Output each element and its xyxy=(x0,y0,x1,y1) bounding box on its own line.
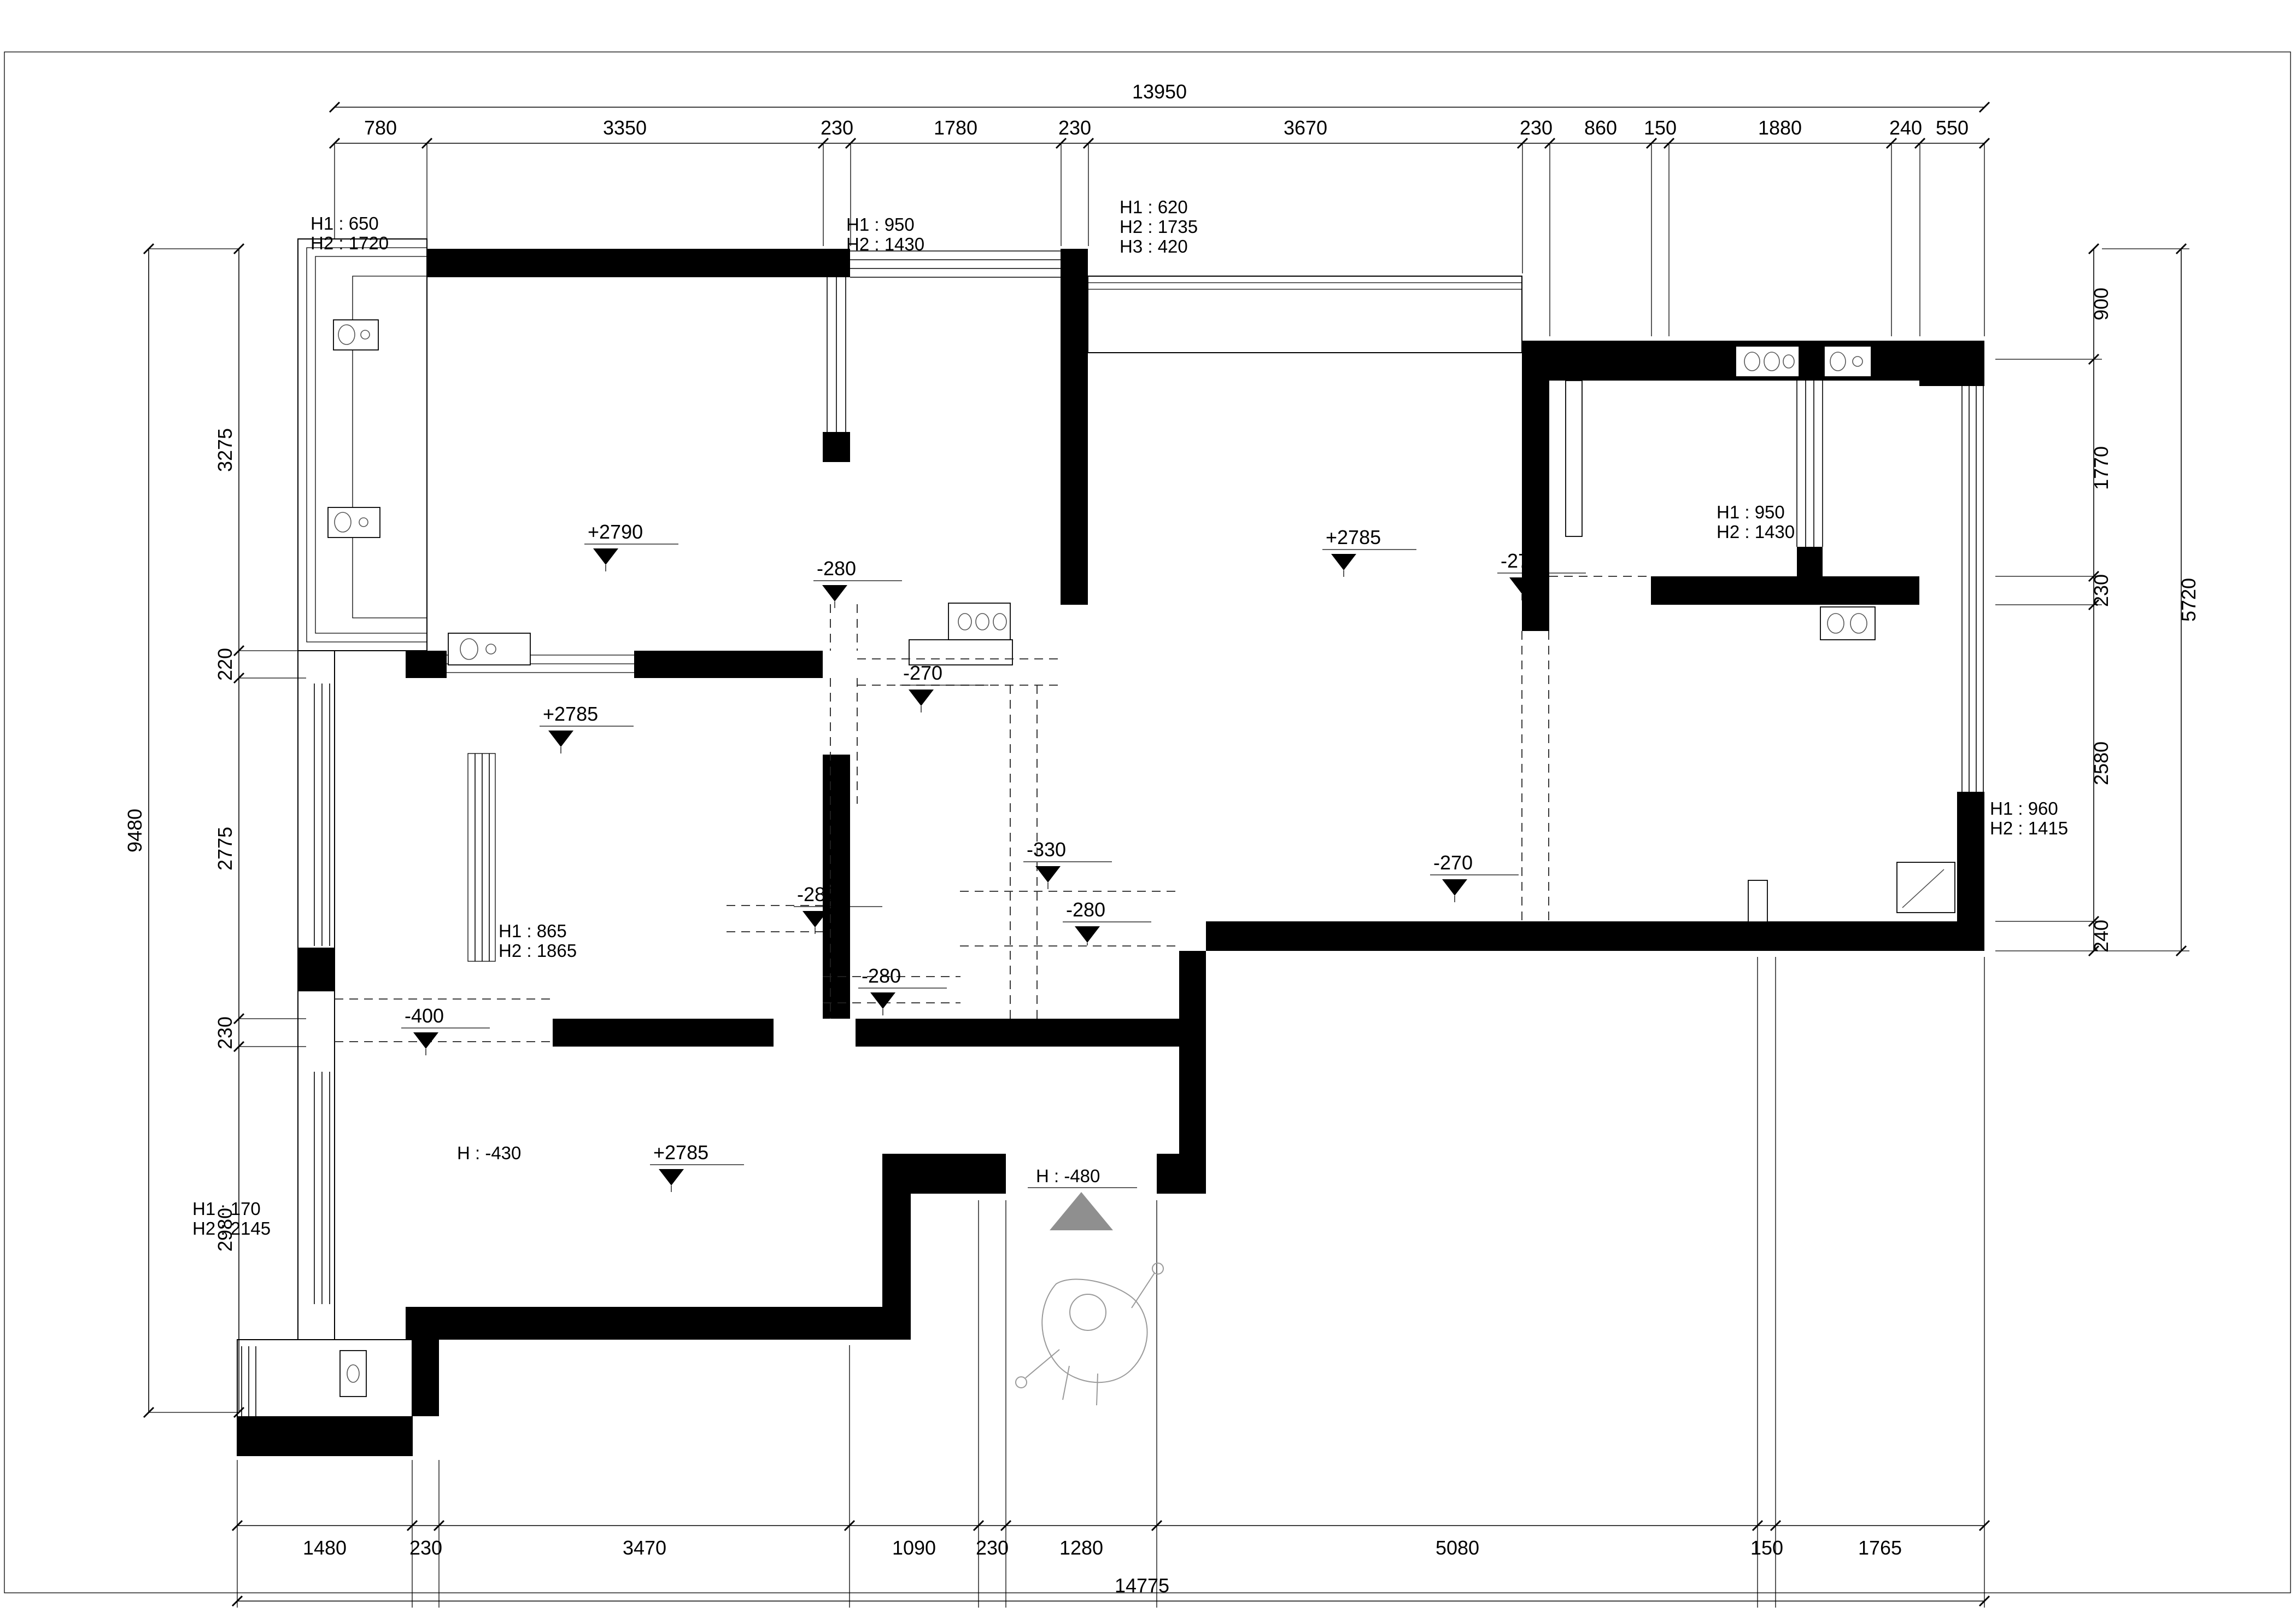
person-legs xyxy=(1063,1366,1098,1405)
dim-label: 220 xyxy=(214,648,236,681)
wall-central xyxy=(1061,249,1088,605)
level-marker-room-c: +2785 xyxy=(650,1141,744,1192)
fixtures xyxy=(328,320,1875,1397)
dim-label: 3670 xyxy=(1284,116,1327,139)
dim-label: 1480 xyxy=(303,1537,347,1559)
person-arm xyxy=(1026,1350,1059,1378)
note-kitchen-window: H2 : 1430 xyxy=(1717,522,1795,542)
dim-label: 1280 xyxy=(1059,1537,1103,1559)
note-kitchen-window: H1 : 950 xyxy=(1717,502,1785,522)
dim-label: 1770 xyxy=(2090,446,2112,490)
dim-label: 1880 xyxy=(1758,116,1802,139)
note-room-c-window: H2 : 2145 xyxy=(192,1218,271,1239)
wall-porch-right xyxy=(412,1340,439,1416)
note-living-bay: H2 : 1735 xyxy=(1120,217,1198,237)
level-marker-living: +2785 xyxy=(1322,526,1416,577)
wall-entrance-left xyxy=(882,1154,1006,1194)
note-top-window: H2 : 1430 xyxy=(846,234,924,254)
level-label: -280 xyxy=(862,965,901,987)
entrance-arrow-icon xyxy=(1050,1192,1113,1230)
note-room-b-window: H1 : 865 xyxy=(499,921,567,941)
dim-label: 230 xyxy=(1520,116,1553,139)
dim-total-right: 5720 xyxy=(2177,578,2200,622)
wall-room-c-top xyxy=(856,1019,1184,1047)
dim-label: 780 xyxy=(364,116,397,139)
socket-symbol xyxy=(328,507,380,538)
dim-total-bottom: 14775 xyxy=(1115,1574,1169,1597)
level-marker-left-400: -400 xyxy=(401,1004,490,1055)
person-hand xyxy=(1016,1377,1027,1388)
wall-kitchen-left xyxy=(1522,381,1549,631)
wall-corner-tr xyxy=(1919,341,1984,386)
level-marker-hall-280-bottom: -280 xyxy=(858,965,947,1015)
note-room-b-window: H2 : 1865 xyxy=(499,940,577,961)
note-right-window: H1 : 960 xyxy=(1990,798,2058,819)
dim-label: 240 xyxy=(2090,920,2112,953)
wall-room-a-bottom xyxy=(634,651,823,678)
dim-label: 230 xyxy=(821,116,853,139)
walls xyxy=(237,249,1984,1456)
level-label: -280 xyxy=(1066,898,1105,921)
note-room-c-door: H : -430 xyxy=(457,1143,521,1163)
bay-tl-outline xyxy=(298,239,427,651)
dim-label: 2775 xyxy=(214,827,236,871)
level-label: -330 xyxy=(1027,838,1066,861)
dim-label: 5080 xyxy=(1436,1537,1479,1559)
dim-label: 150 xyxy=(1750,1537,1783,1559)
window-top xyxy=(850,251,1061,277)
window-left-room-b xyxy=(314,684,330,946)
level-label: -280 xyxy=(817,557,856,580)
dim-label: 1090 xyxy=(892,1537,936,1559)
floor-plan-sheet: 13950 780 3350 230 1780 230 3670 230 860… xyxy=(0,0,2296,1624)
dim-label: 150 xyxy=(1644,116,1677,139)
dim-label: 1780 xyxy=(934,116,977,139)
wall-entrance-right xyxy=(1157,1154,1206,1194)
level-label: +2785 xyxy=(653,1141,708,1164)
level-marker-room-a: +2790 xyxy=(584,521,678,571)
bay-tl-frame xyxy=(307,248,427,642)
level-marker-hall-270: -270 xyxy=(900,662,988,712)
socket-symbol xyxy=(1824,346,1871,377)
dim-chain-bottom: 1480 230 3470 1090 230 1280 5080 150 176… xyxy=(232,957,1989,1608)
socket-symbol xyxy=(1736,346,1799,377)
wall-room-a-top xyxy=(427,249,823,277)
level-marker-room-b: +2785 xyxy=(540,703,634,753)
level-marker-vestibule-280: -280 xyxy=(1063,898,1151,945)
dim-label: 3470 xyxy=(623,1537,666,1559)
note-bay-tl: H2 : 1720 xyxy=(311,233,389,253)
window-room-b-inner xyxy=(475,753,489,961)
level-label: -270 xyxy=(1433,851,1473,874)
living-bay-outline xyxy=(1088,276,1522,353)
dim-label: 1765 xyxy=(1858,1537,1902,1559)
level-label: +2790 xyxy=(588,521,643,543)
dim-label: 3350 xyxy=(603,116,647,139)
window-right-outer xyxy=(1962,386,1983,792)
dim-chain-left: 9480 3275 220 2775 230 2980 xyxy=(124,244,306,1417)
level-label: -280 xyxy=(797,883,836,906)
person-body xyxy=(1042,1279,1147,1382)
wall-left-chunk xyxy=(298,948,335,991)
level-label: -270 xyxy=(1501,550,1540,572)
dim-total-top: 13950 xyxy=(1132,80,1187,103)
kitchen-pilaster xyxy=(1566,381,1582,536)
dim-label: 900 xyxy=(2090,288,2112,320)
wall-right-wing-bottom xyxy=(1206,921,1984,951)
level-marker-right-270: -270 xyxy=(1430,851,1519,902)
note-bay-tl: H1 : 650 xyxy=(311,213,379,233)
dim-label: 240 xyxy=(1889,116,1922,139)
person-head xyxy=(1070,1294,1106,1330)
person-hand xyxy=(1152,1263,1163,1274)
level-marker-hall-280-top: -280 xyxy=(813,557,902,608)
dim-label: 230 xyxy=(214,1017,236,1049)
window-porch xyxy=(242,1346,256,1416)
dim-label: 230 xyxy=(409,1537,442,1559)
window-kitchen-right xyxy=(1797,381,1823,547)
note-living-bay: H3 : 420 xyxy=(1120,236,1188,256)
level-label: +2785 xyxy=(543,703,598,725)
dim-total-left: 9480 xyxy=(124,809,146,852)
wall-vestibule-right xyxy=(1179,951,1206,1154)
wall-room-c-bottom xyxy=(406,1307,911,1340)
floor-plan-svg: 13950 780 3350 230 1780 230 3670 230 860… xyxy=(0,0,2296,1624)
level-label: -400 xyxy=(405,1004,444,1027)
room-b-window-frame xyxy=(468,753,495,961)
note-living-bay: H1 : 620 xyxy=(1120,197,1188,217)
note-right-window: H2 : 1415 xyxy=(1990,818,2068,838)
socket-symbol xyxy=(340,1351,366,1397)
dim-label: 2580 xyxy=(2090,741,2112,785)
dim-label: 3275 xyxy=(214,428,236,472)
entrance-label: H : -480 xyxy=(1036,1166,1100,1186)
dim-label: 550 xyxy=(1936,116,1969,139)
wall-jamb xyxy=(1797,547,1823,576)
pilaster xyxy=(1748,880,1767,922)
wall-col xyxy=(823,432,850,462)
wall-kitchen-bottom xyxy=(1651,576,1919,605)
level-label: +2785 xyxy=(1326,526,1381,548)
person-arm xyxy=(1132,1273,1155,1308)
dim-label: 860 xyxy=(1584,116,1617,139)
person-figure xyxy=(1016,1263,1163,1405)
note-room-c-window: H1 : 170 xyxy=(192,1199,261,1219)
window-left-room-c xyxy=(314,1072,330,1304)
level-label: -270 xyxy=(903,662,942,684)
dim-label: 230 xyxy=(976,1537,1009,1559)
socket-symbol xyxy=(1820,607,1875,640)
hall-appliance xyxy=(948,603,1010,640)
bay-tl-frame xyxy=(315,256,427,633)
windows xyxy=(242,251,1983,1416)
entrance: H : -480 xyxy=(1028,1166,1137,1230)
note-top-window: H1 : 950 xyxy=(846,214,915,235)
dim-label: 230 xyxy=(2090,574,2112,607)
wall-porch-bottom xyxy=(237,1416,412,1456)
socket-symbol xyxy=(333,320,378,350)
dim-label: 230 xyxy=(1058,116,1091,139)
socket-symbol xyxy=(448,633,530,665)
wall-room-a-bottom xyxy=(406,651,447,678)
wall-room-c-top xyxy=(553,1019,774,1047)
wall-vestibule-left xyxy=(882,1194,911,1307)
dim-chain-right: 5720 900 1770 230 2580 240 xyxy=(1995,244,2200,956)
thin-lines xyxy=(237,239,1955,1456)
